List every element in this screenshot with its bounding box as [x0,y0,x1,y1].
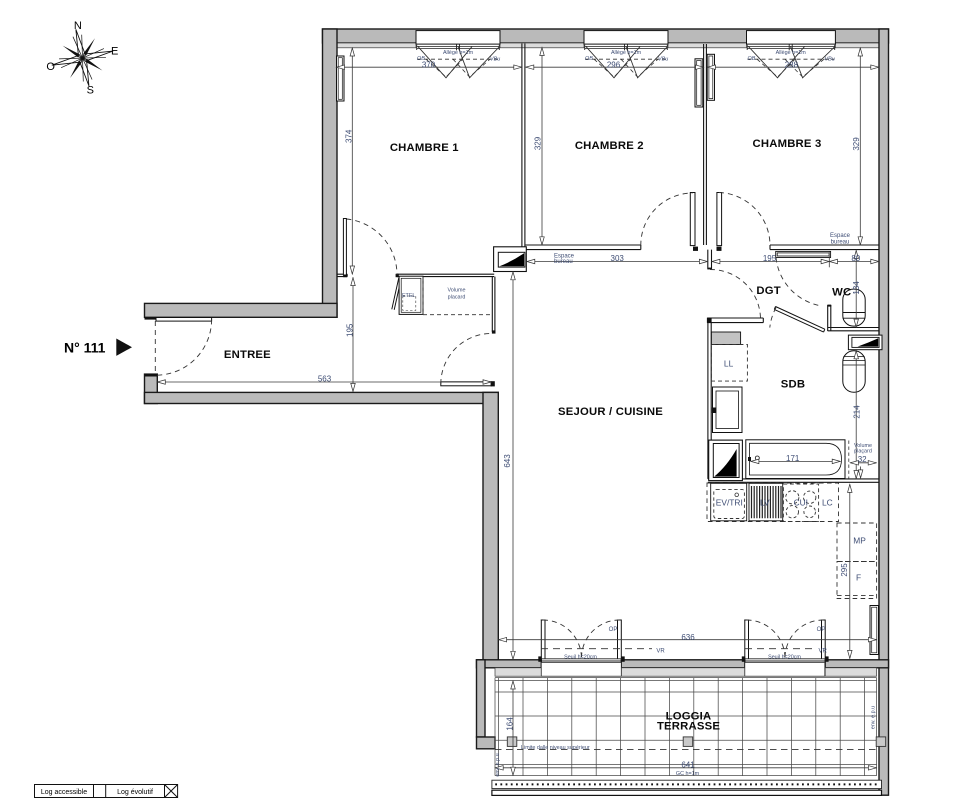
svg-text:MP: MP [853,536,866,546]
svg-text:329: 329 [852,137,861,151]
svg-text:GC h=1m: GC h=1m [676,771,700,777]
svg-text:SDB: SDB [781,379,805,391]
svg-text:TERRASSE: TERRASSE [657,721,720,733]
svg-text:VBu: VBu [825,57,835,63]
svg-text:CUI: CUI [794,497,808,507]
svg-text:Limite dalle niveau supérieur: Limite dalle niveau supérieur [521,745,590,751]
svg-text:Seuil h=20cm: Seuil h=20cm [564,654,597,660]
svg-text:CHAMBRE 3: CHAMBRE 3 [753,138,822,150]
svg-text:env. e.p.u: env. e.p.u [495,753,501,776]
svg-text:636: 636 [681,633,695,642]
svg-text:EV/TRI: EV/TRI [716,497,743,507]
svg-text:WC: WC [832,286,851,298]
svg-text:Seuil h=20cm: Seuil h=20cm [768,654,801,660]
svg-text:F: F [856,573,861,583]
svg-text:641: 641 [681,760,695,769]
svg-text:plaçard: plaçard [854,449,872,455]
svg-text:LV: LV [760,497,770,507]
svg-text:Volume: Volume [448,288,466,294]
svg-text:E: E [111,45,118,57]
svg-text:370: 370 [422,60,436,69]
svg-text:N: N [74,20,82,32]
svg-text:563: 563 [318,374,332,383]
svg-text:OP: OP [609,627,618,633]
svg-text:LL: LL [724,358,734,368]
svg-text:OP: OP [817,627,826,633]
svg-text:Allège h=1m: Allège h=1m [611,50,642,56]
svg-text:171: 171 [786,454,800,463]
svg-text:303: 303 [611,254,625,263]
svg-text:Espace: Espace [830,233,851,239]
svg-text:32: 32 [858,455,867,464]
svg-text:643: 643 [503,454,512,468]
svg-text:374: 374 [345,129,354,143]
svg-text:ETEL: ETEL [402,293,415,299]
svg-text:Allège h=1m: Allège h=1m [776,50,807,56]
svg-text:env. e.p.u: env. e.p.u [871,706,877,729]
svg-text:VBu: VBu [490,57,500,63]
svg-text:Log évolutif: Log évolutif [117,789,153,796]
svg-text:O: O [46,61,55,73]
svg-text:329: 329 [534,136,543,150]
svg-text:OB: OB [748,56,756,62]
svg-text:134: 134 [852,281,861,295]
svg-text:295: 295 [840,563,849,577]
svg-text:ENTREE: ENTREE [224,349,271,361]
svg-text:214: 214 [852,405,861,419]
svg-text:VBu: VBu [658,57,668,63]
svg-text:CHAMBRE 2: CHAMBRE 2 [575,140,644,152]
svg-text:S: S [87,84,94,96]
svg-text:Log accessible: Log accessible [41,789,87,796]
svg-text:296: 296 [607,60,621,69]
svg-text:195: 195 [763,254,777,263]
svg-text:OB: OB [585,56,593,62]
svg-text:288: 288 [785,60,799,69]
svg-text:bureau: bureau [554,259,573,265]
svg-text:80: 80 [851,254,860,263]
svg-text:N° 111: N° 111 [64,339,106,355]
svg-text:Allège h=1m: Allège h=1m [443,50,474,56]
svg-text:LC: LC [822,497,833,507]
svg-text:CHAMBRE 1: CHAMBRE 1 [390,142,459,154]
svg-text:VR: VR [656,649,665,655]
svg-text:164: 164 [505,717,514,731]
svg-text:SEJOUR / CUISINE: SEJOUR / CUISINE [558,406,663,418]
svg-text:bureau: bureau [831,240,850,246]
svg-text:195: 195 [345,323,354,337]
svg-text:placard: placard [448,294,466,300]
svg-text:DGT: DGT [756,285,780,297]
svg-text:VR: VR [819,649,828,655]
